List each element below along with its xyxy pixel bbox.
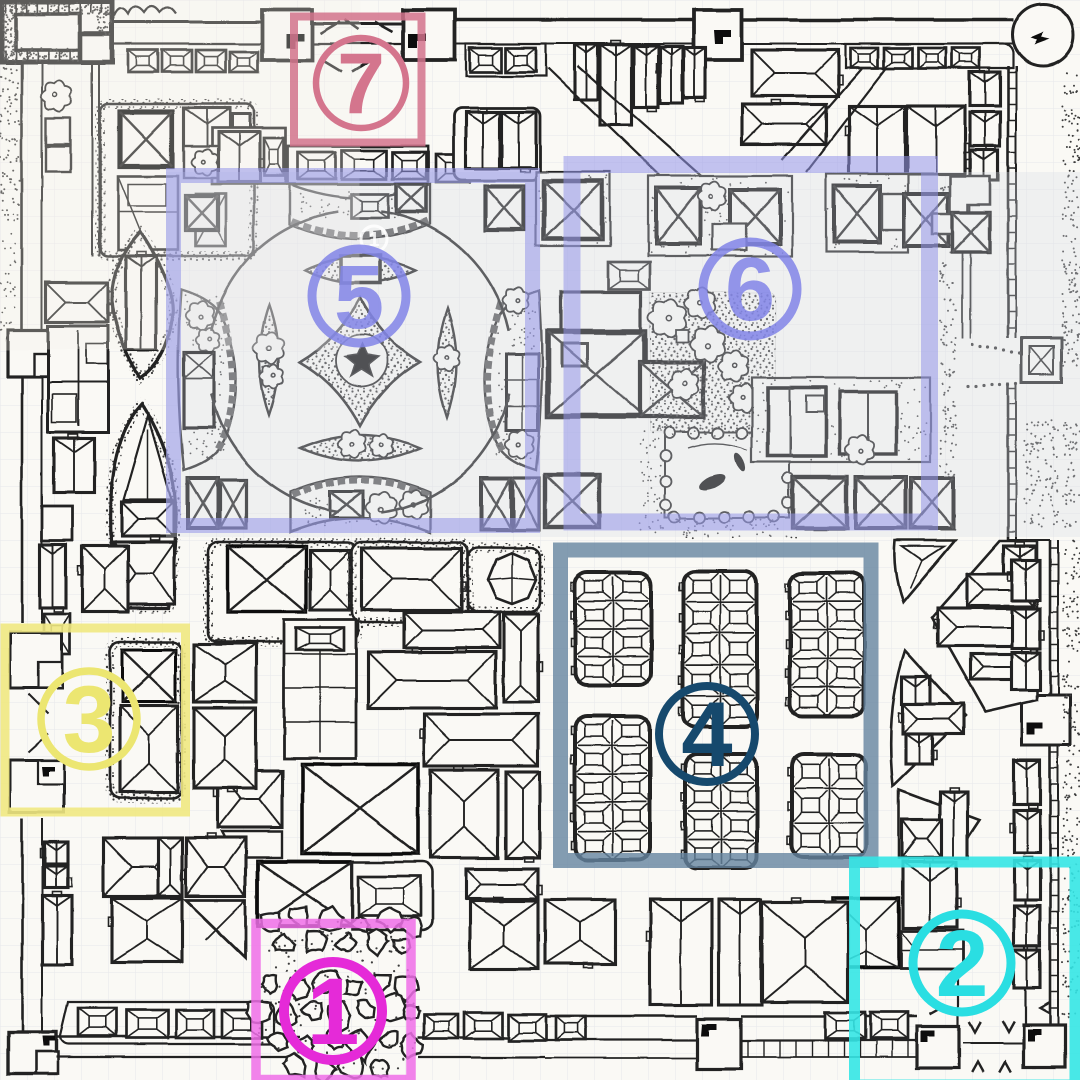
svg-text:1: 1 [307, 959, 360, 1065]
svg-text:3: 3 [63, 667, 116, 773]
svg-text:4: 4 [681, 684, 732, 786]
svg-text:2: 2 [936, 911, 989, 1017]
svg-text:5: 5 [334, 248, 384, 348]
svg-text:6: 6 [725, 240, 775, 340]
svg-text:7: 7 [337, 36, 385, 132]
